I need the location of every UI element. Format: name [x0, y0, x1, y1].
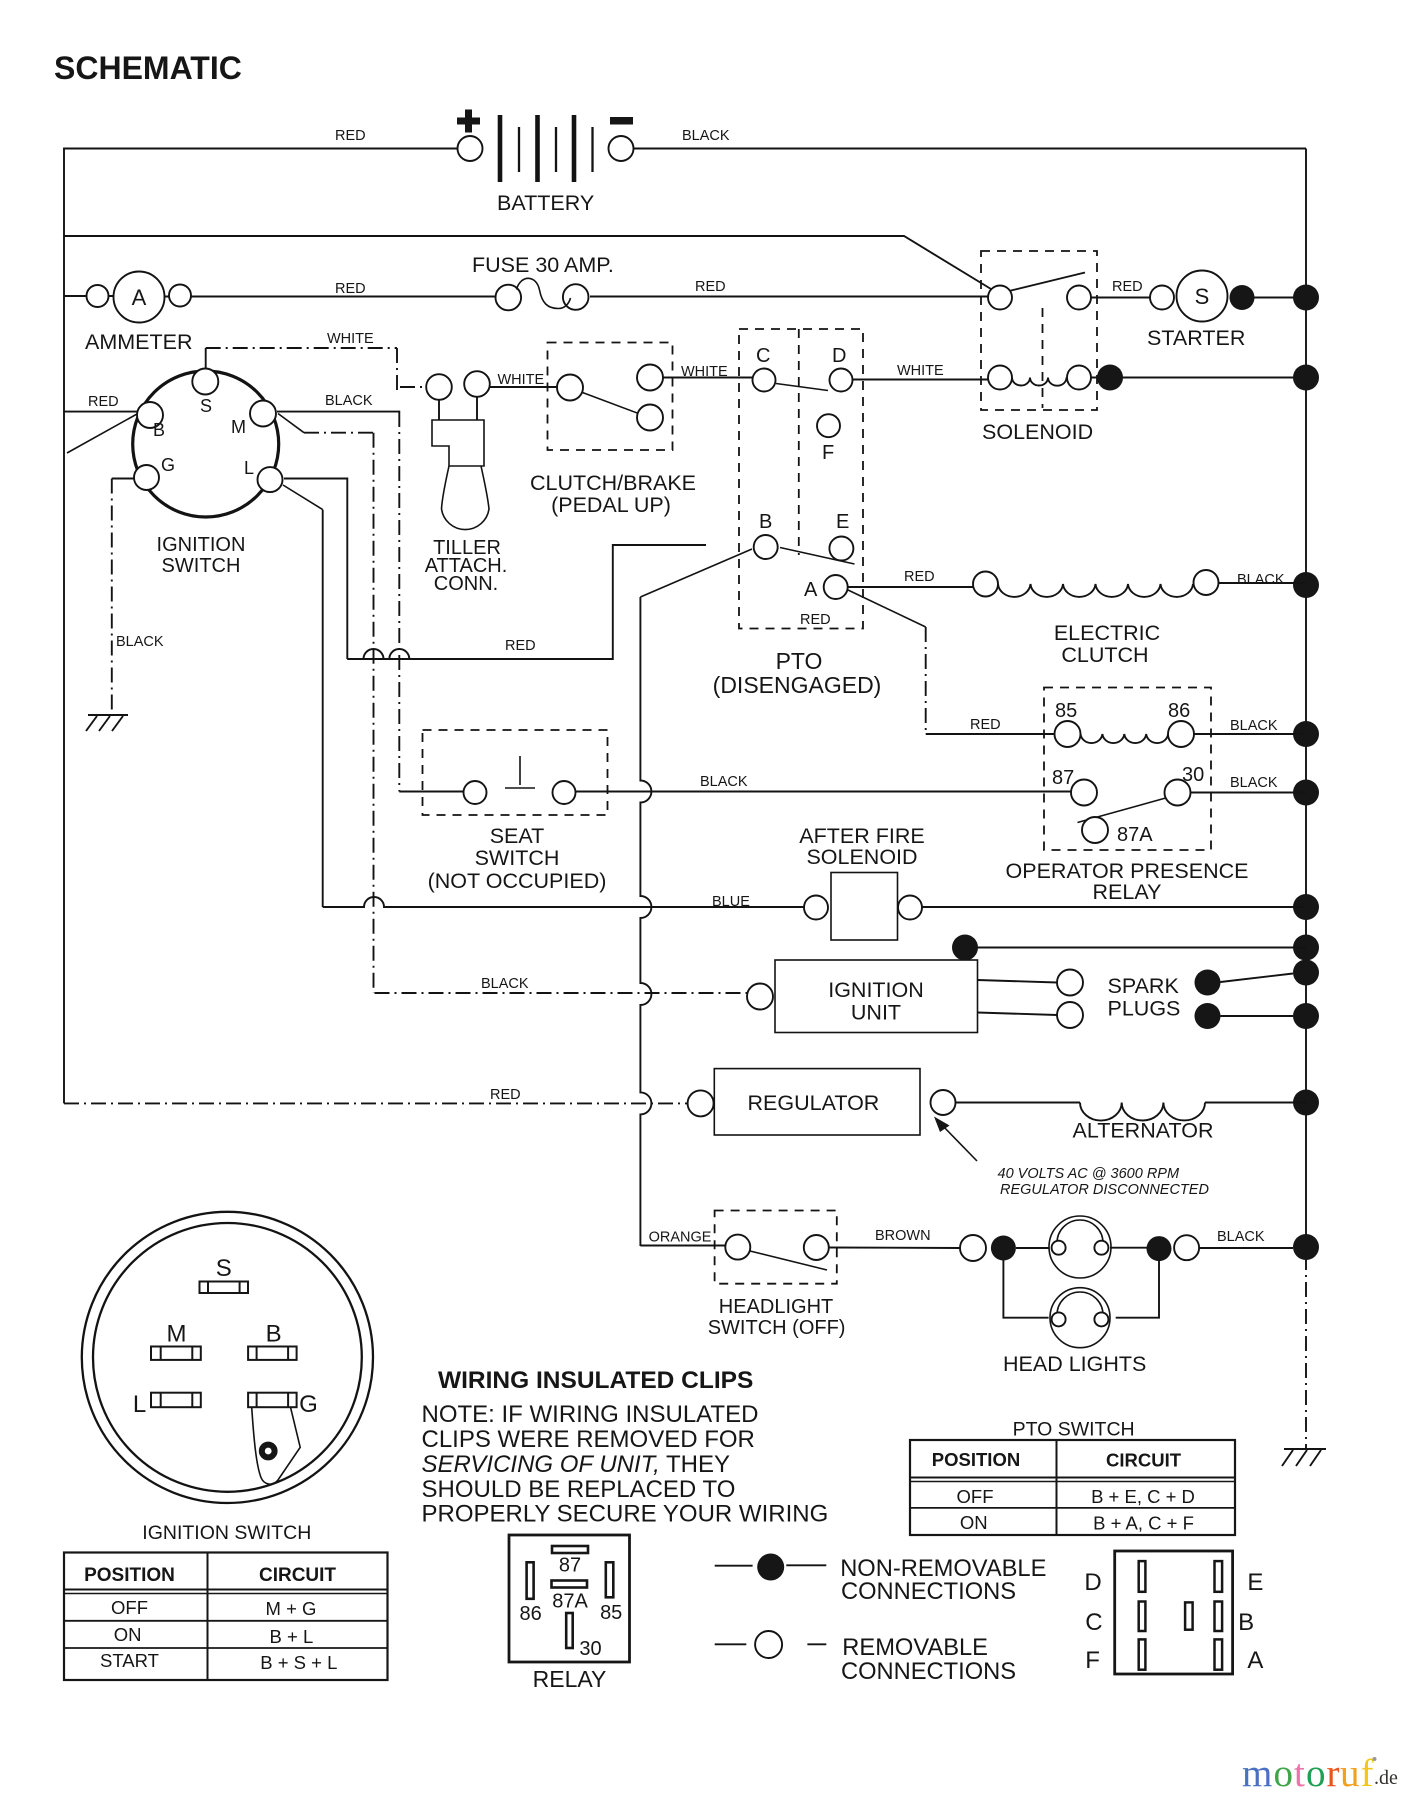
- svg-text:SPARK: SPARK: [1108, 974, 1180, 998]
- svg-text:PLUGS: PLUGS: [1108, 997, 1181, 1021]
- svg-text:RED: RED: [904, 569, 935, 585]
- svg-text:30: 30: [579, 1638, 601, 1660]
- svg-text:POSITION: POSITION: [932, 1449, 1020, 1470]
- svg-text:POSITION: POSITION: [84, 1565, 175, 1586]
- svg-text:SOLENOID: SOLENOID: [982, 420, 1093, 444]
- svg-text:IGNITION: IGNITION: [828, 978, 924, 1002]
- svg-text:RED: RED: [505, 638, 536, 654]
- svg-text:B + L: B + L: [270, 1626, 314, 1647]
- svg-text:RED: RED: [88, 394, 119, 410]
- svg-text:(NOT OCCUPIED): (NOT OCCUPIED): [428, 869, 607, 893]
- svg-text:SHOULD BE REPLACED TO: SHOULD BE REPLACED TO: [422, 1476, 736, 1503]
- svg-text:C: C: [756, 345, 770, 367]
- svg-text:PTO SWITCH: PTO SWITCH: [1013, 1419, 1135, 1441]
- svg-text:M: M: [231, 417, 246, 437]
- svg-text:40 VOLTS AC @ 3600 RPM: 40 VOLTS AC @ 3600 RPM: [998, 1166, 1180, 1182]
- svg-text:BLACK: BLACK: [116, 634, 164, 650]
- svg-text:WHITE: WHITE: [897, 363, 944, 379]
- svg-text:G: G: [161, 455, 175, 475]
- svg-text:WHITE: WHITE: [498, 372, 545, 388]
- svg-text:CIRCUIT: CIRCUIT: [259, 1565, 336, 1586]
- svg-text:B: B: [153, 420, 165, 440]
- svg-text:CIRCUIT: CIRCUIT: [1106, 1450, 1182, 1471]
- svg-text:(PEDAL UP): (PEDAL UP): [551, 493, 671, 517]
- svg-text:B: B: [759, 511, 772, 533]
- svg-text:86: 86: [519, 1603, 541, 1625]
- svg-text:r: r: [1327, 1752, 1340, 1795]
- svg-text:S: S: [1195, 284, 1210, 309]
- svg-text:BLACK: BLACK: [1230, 775, 1278, 791]
- svg-text:RED: RED: [970, 717, 1001, 733]
- svg-text:u: u: [1340, 1752, 1360, 1795]
- svg-text:85: 85: [1055, 700, 1077, 722]
- svg-text:BLACK: BLACK: [1217, 1229, 1265, 1245]
- svg-text:S: S: [216, 1255, 232, 1282]
- svg-text:F: F: [1085, 1647, 1100, 1674]
- svg-text:F: F: [822, 442, 834, 464]
- svg-text:RELAY: RELAY: [533, 1666, 607, 1692]
- svg-text:(DISENGAGED): (DISENGAGED): [713, 672, 882, 698]
- svg-text:OFF: OFF: [111, 1597, 148, 1618]
- svg-text:CLUTCH: CLUTCH: [1061, 643, 1148, 667]
- svg-text:BATTERY: BATTERY: [497, 191, 594, 215]
- svg-text:o: o: [1306, 1752, 1326, 1795]
- svg-text:85: 85: [600, 1602, 622, 1624]
- svg-text:CONNECTIONS: CONNECTIONS: [841, 1659, 1016, 1685]
- svg-text:RED: RED: [1112, 279, 1143, 295]
- svg-text:RED: RED: [695, 279, 726, 295]
- svg-text:f: f: [1361, 1752, 1374, 1795]
- svg-text:ELECTRIC: ELECTRIC: [1054, 621, 1160, 645]
- svg-text:87A: 87A: [552, 1591, 588, 1613]
- svg-text:BLUE: BLUE: [712, 894, 750, 910]
- svg-text:START: START: [100, 1650, 159, 1671]
- svg-text:BLACK: BLACK: [325, 393, 373, 409]
- svg-text:SWITCH: SWITCH: [475, 846, 560, 870]
- svg-text:SEAT: SEAT: [490, 824, 545, 848]
- svg-text:RELAY: RELAY: [1093, 880, 1162, 904]
- svg-text:.de: .de: [1374, 1767, 1398, 1789]
- svg-text:CLUTCH/BRAKE: CLUTCH/BRAKE: [530, 471, 696, 495]
- svg-text:IGNITION: IGNITION: [157, 534, 246, 556]
- svg-text:A: A: [1247, 1647, 1263, 1674]
- svg-text:87: 87: [559, 1555, 581, 1577]
- svg-text:87A: 87A: [1117, 824, 1153, 846]
- svg-text:M: M: [167, 1321, 187, 1348]
- svg-text:ORANGE: ORANGE: [649, 1230, 712, 1246]
- svg-text:WHITE: WHITE: [681, 364, 728, 380]
- svg-text:SWITCH (OFF): SWITCH (OFF): [708, 1317, 846, 1339]
- svg-text:30: 30: [1182, 764, 1204, 786]
- svg-text:WHITE: WHITE: [327, 331, 374, 347]
- svg-text:BLACK: BLACK: [481, 976, 529, 992]
- svg-text:A: A: [804, 579, 818, 601]
- svg-text:87: 87: [1052, 767, 1074, 789]
- svg-text:86: 86: [1168, 700, 1190, 722]
- svg-text:REGULATOR DISCONNECTED: REGULATOR DISCONNECTED: [1000, 1182, 1209, 1198]
- svg-text:AMMETER: AMMETER: [85, 330, 193, 354]
- svg-text:G: G: [299, 1391, 318, 1418]
- svg-text:IGNITION SWITCH: IGNITION SWITCH: [142, 1522, 311, 1544]
- svg-text:STARTER: STARTER: [1147, 326, 1245, 350]
- svg-text:BLACK: BLACK: [1230, 718, 1278, 734]
- svg-text:RED: RED: [335, 128, 366, 144]
- svg-text:E: E: [836, 511, 849, 533]
- svg-text:D: D: [832, 345, 846, 367]
- svg-text:NOTE: IF WIRING INSULATED: NOTE: IF WIRING INSULATED: [422, 1401, 759, 1428]
- svg-text:SCHEMATIC: SCHEMATIC: [54, 50, 242, 86]
- svg-text:M + G: M + G: [266, 1598, 317, 1619]
- svg-text:S: S: [200, 396, 212, 416]
- svg-text:B: B: [266, 1321, 282, 1348]
- svg-text:FUSE 30 AMP.: FUSE 30 AMP.: [472, 253, 614, 277]
- svg-text:B + A, C + F: B + A, C + F: [1093, 1513, 1194, 1534]
- svg-text:SOLENOID: SOLENOID: [806, 845, 917, 869]
- svg-text:HEADLIGHT: HEADLIGHT: [719, 1296, 833, 1318]
- svg-text:B: B: [1238, 1609, 1254, 1636]
- svg-text:UNIT: UNIT: [851, 1001, 901, 1025]
- svg-text:PROPERLY SECURE YOUR WIRING: PROPERLY SECURE YOUR WIRING: [422, 1501, 829, 1528]
- svg-text:RED: RED: [335, 281, 366, 297]
- svg-text:BLACK: BLACK: [1237, 572, 1285, 588]
- svg-text:ON: ON: [960, 1512, 988, 1533]
- svg-text:o: o: [1274, 1752, 1294, 1795]
- svg-text:ON: ON: [114, 1624, 142, 1645]
- svg-text:E: E: [1247, 1569, 1263, 1596]
- svg-text:SWITCH: SWITCH: [162, 555, 241, 577]
- svg-text:m: m: [1242, 1752, 1272, 1795]
- svg-text:BLACK: BLACK: [682, 128, 730, 144]
- svg-text:ALTERNATOR: ALTERNATOR: [1073, 1119, 1214, 1143]
- svg-text:CLIPS WERE REMOVED FOR: CLIPS WERE REMOVED FOR: [422, 1426, 755, 1453]
- svg-text:t: t: [1294, 1752, 1305, 1795]
- svg-text:HEAD LIGHTS: HEAD LIGHTS: [1003, 1352, 1146, 1376]
- svg-text:REGULATOR: REGULATOR: [748, 1091, 880, 1115]
- svg-text:PTO: PTO: [776, 648, 823, 674]
- svg-text:D: D: [1084, 1569, 1101, 1596]
- svg-text:L: L: [244, 458, 254, 478]
- svg-text:SERVICING OF UNIT, THEY: SERVICING OF UNIT, THEY: [422, 1451, 731, 1478]
- svg-text:B + E, C + D: B + E, C + D: [1091, 1486, 1195, 1507]
- svg-text:BROWN: BROWN: [875, 1228, 931, 1244]
- svg-text:CONNECTIONS: CONNECTIONS: [841, 1579, 1016, 1605]
- svg-text:RED: RED: [490, 1087, 521, 1103]
- svg-text:REMOVABLE: REMOVABLE: [842, 1635, 988, 1661]
- svg-text:C: C: [1085, 1609, 1102, 1636]
- svg-text:RED: RED: [800, 612, 831, 628]
- svg-text:OFF: OFF: [957, 1486, 994, 1507]
- svg-text:L: L: [133, 1391, 146, 1418]
- svg-text:CONN.: CONN.: [434, 573, 498, 595]
- svg-text:A: A: [132, 285, 147, 310]
- svg-text:BLACK: BLACK: [700, 774, 748, 790]
- svg-text:WIRING INSULATED CLIPS: WIRING INSULATED CLIPS: [438, 1367, 753, 1394]
- svg-text:B + S + L: B + S + L: [260, 1652, 337, 1673]
